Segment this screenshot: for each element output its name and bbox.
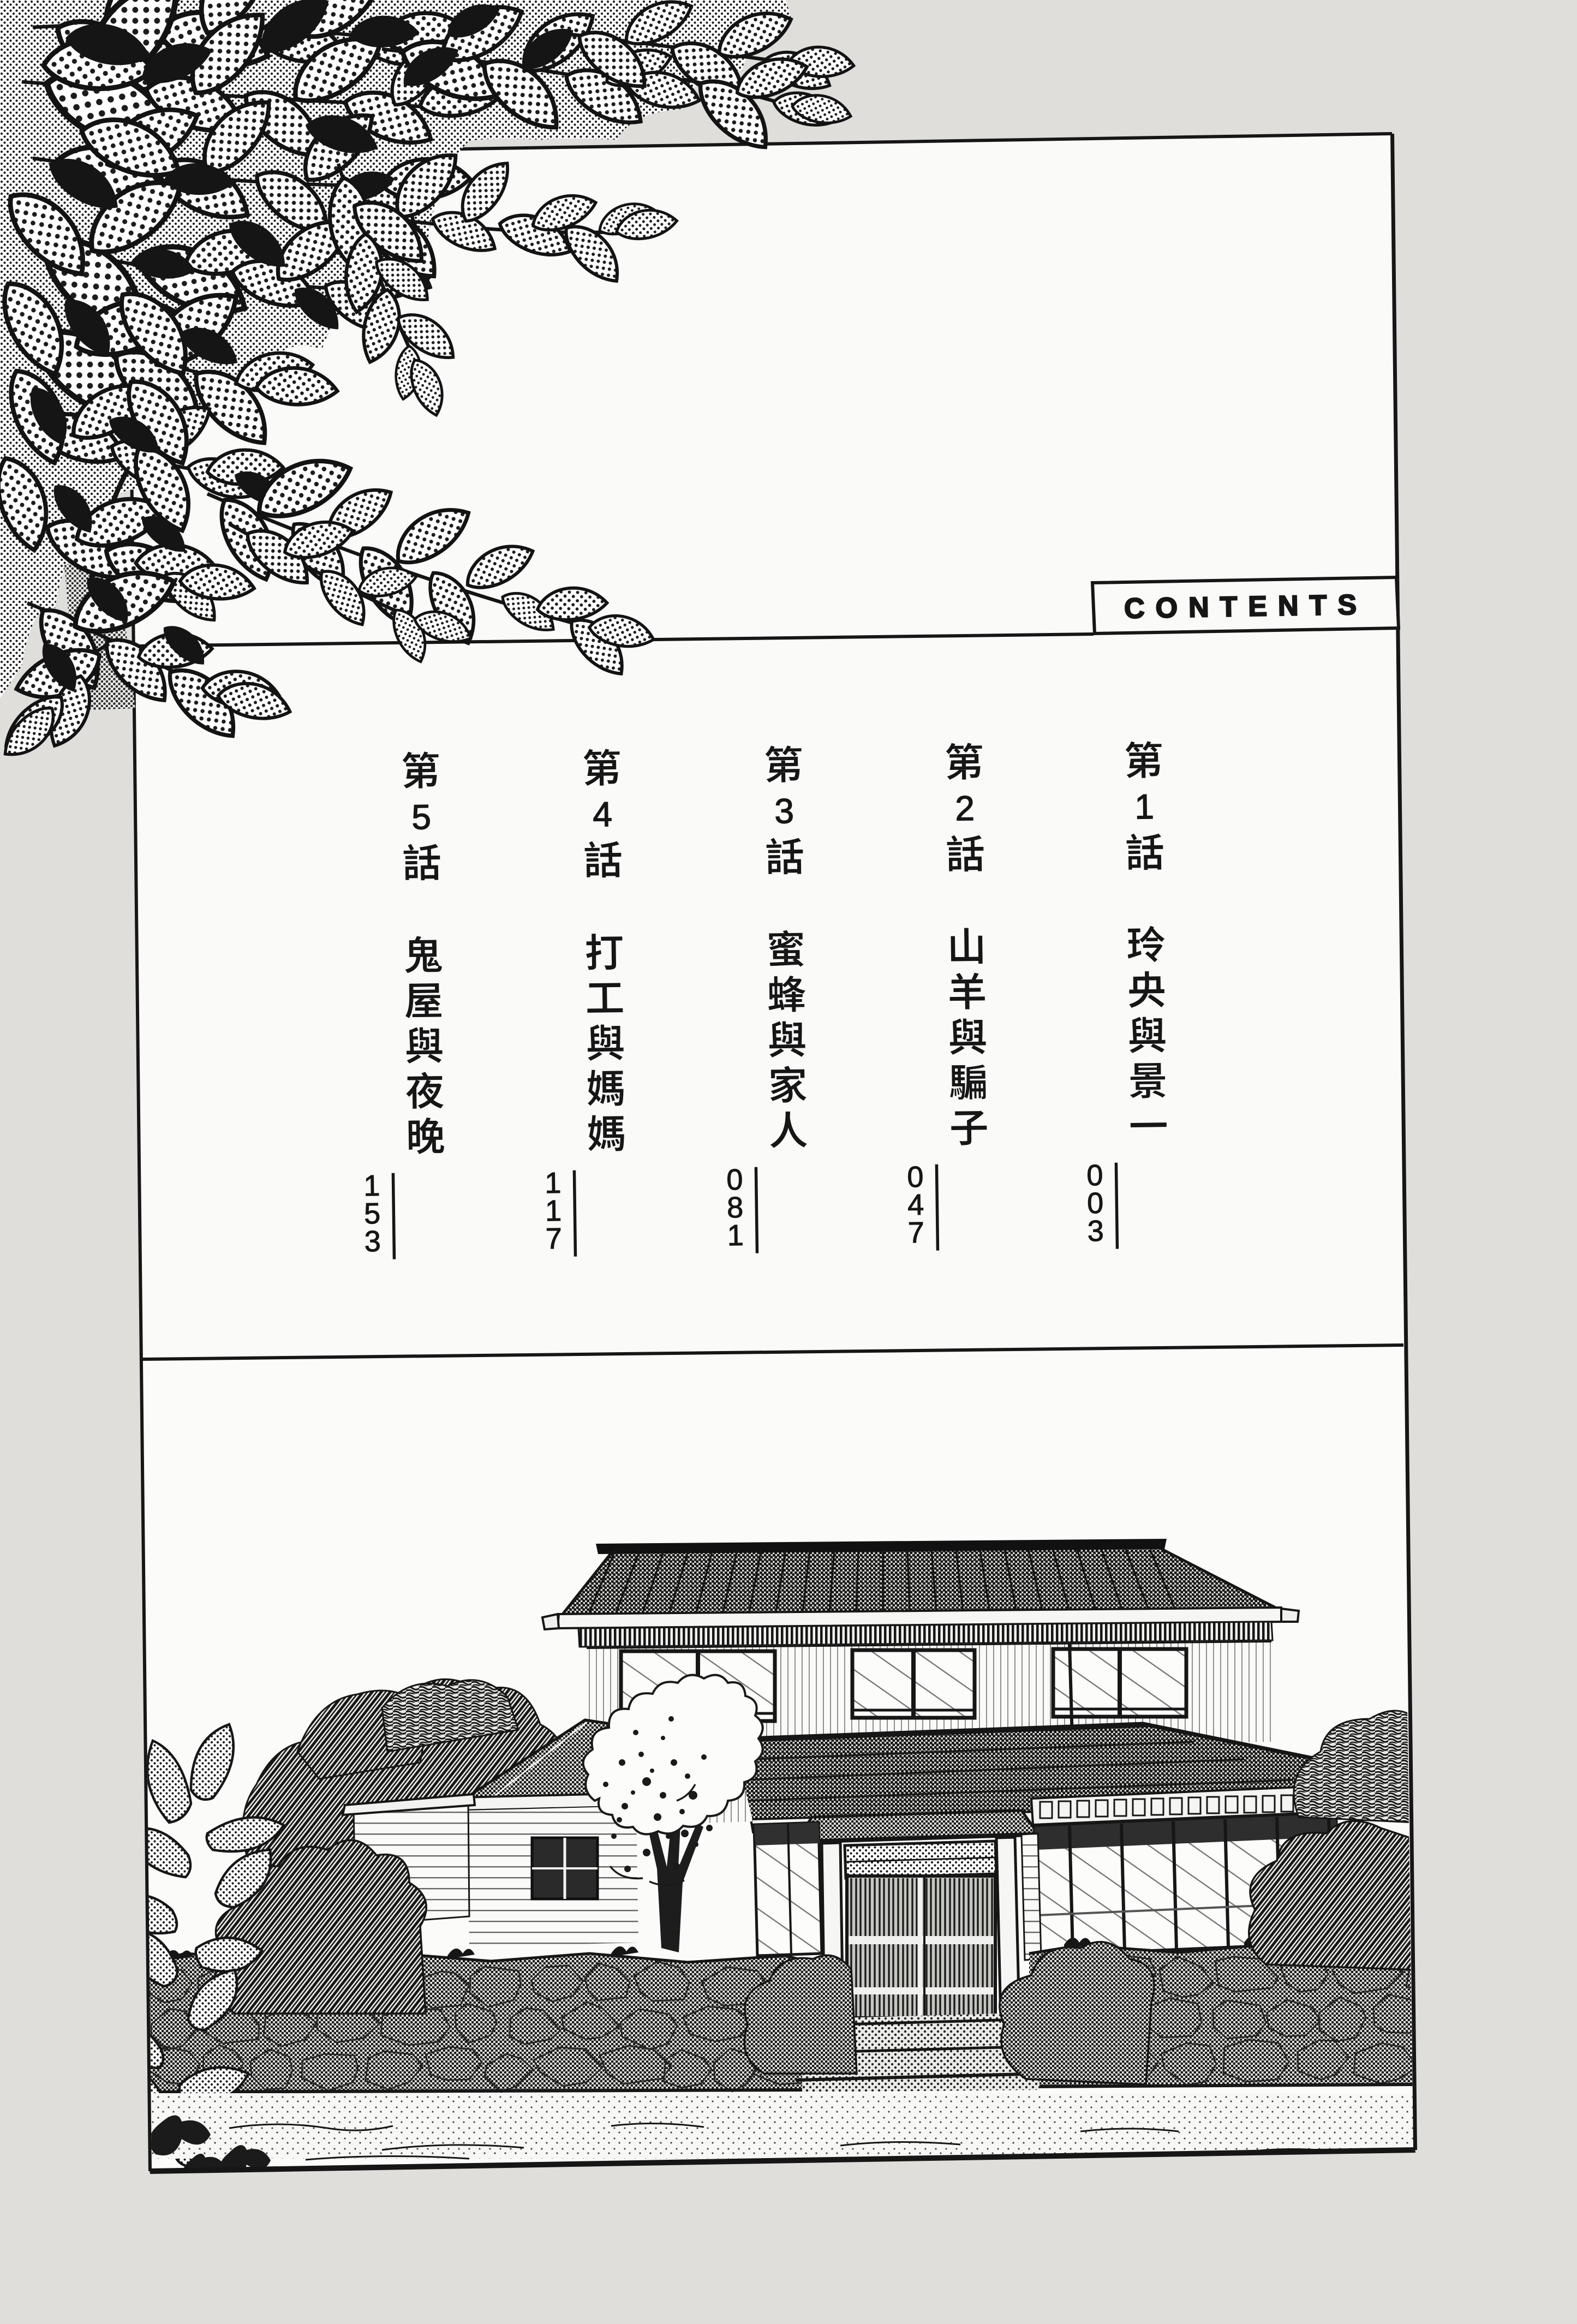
svg-text:3: 3	[774, 791, 795, 831]
svg-text:2: 2	[955, 788, 975, 828]
svg-text:3: 3	[364, 1225, 381, 1258]
svg-text:3: 3	[1087, 1215, 1104, 1247]
svg-text:7: 7	[907, 1216, 924, 1249]
svg-text:4: 4	[593, 794, 613, 834]
svg-text:7: 7	[545, 1222, 562, 1255]
svg-text:5: 5	[411, 797, 432, 837]
svg-text:1: 1	[727, 1219, 744, 1252]
svg-text:CONTENTS: CONTENTS	[1124, 589, 1368, 624]
svg-text:1: 1	[1134, 787, 1155, 826]
